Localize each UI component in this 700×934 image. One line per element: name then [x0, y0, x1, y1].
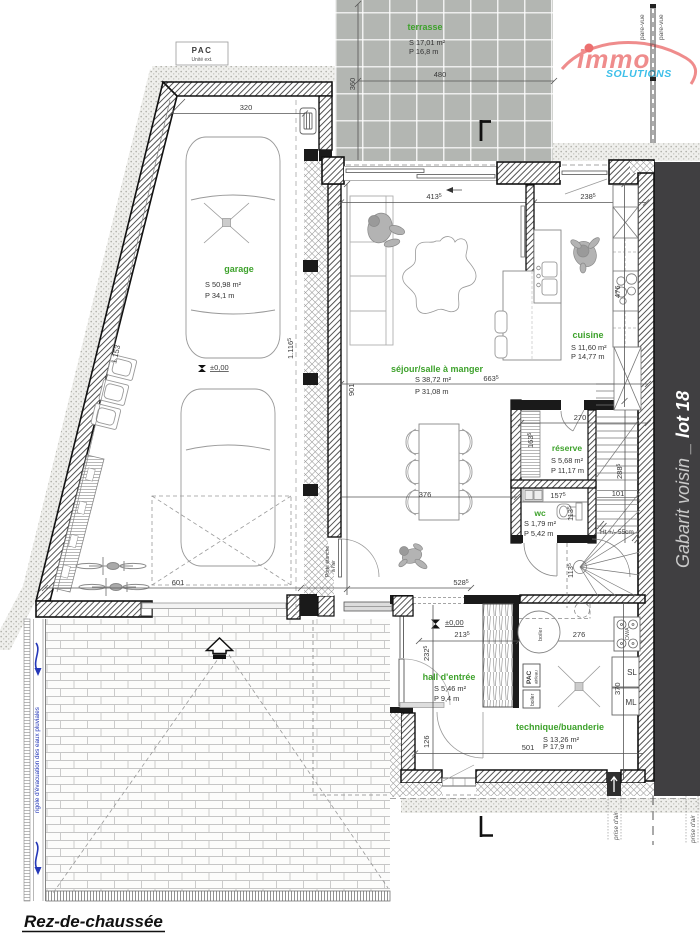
svg-text:S 50,98 m²: S 50,98 m² — [205, 280, 242, 289]
svg-text:séjour/salle à manger: séjour/salle à manger — [391, 364, 484, 374]
svg-text:wc: wc — [533, 508, 546, 518]
svg-text:270: 270 — [574, 413, 587, 422]
svg-text:P 17,9 m: P 17,9 m — [543, 742, 572, 751]
svg-text:Gabarit voisin _ lot 18: Gabarit voisin _ lot 18 — [673, 391, 693, 568]
svg-text:prise d'air: prise d'air — [613, 811, 620, 841]
svg-text:S 38,72 m²: S 38,72 m² — [415, 375, 452, 384]
svg-text:DWA: DWA — [625, 627, 631, 640]
svg-text:hall d'entrée: hall d'entrée — [423, 672, 476, 682]
svg-text:4135: 4135 — [426, 192, 442, 201]
svg-text:Ht +/- 55cm: Ht +/- 55cm — [600, 529, 634, 536]
svg-text:S 5,68 m²: S 5,68 m² — [551, 456, 584, 465]
svg-text:476: 476 — [613, 285, 622, 298]
svg-text:boiler: boiler — [530, 693, 536, 706]
svg-text:P 5,42 m: P 5,42 m — [524, 529, 553, 538]
svg-text:P 31,08 m: P 31,08 m — [415, 387, 449, 396]
svg-text:2385: 2385 — [580, 192, 596, 201]
svg-text:276: 276 — [573, 630, 586, 639]
svg-text:5285: 5285 — [453, 578, 469, 587]
svg-text:réserve: réserve — [552, 443, 583, 453]
svg-text:601: 601 — [172, 578, 185, 587]
svg-text:101: 101 — [612, 489, 625, 498]
svg-text:360: 360 — [348, 78, 357, 91]
svg-text:±0,00: ±0,00 — [210, 363, 229, 372]
svg-text:pare-vue: pare-vue — [639, 14, 646, 40]
svg-text:à l'air: à l'air — [331, 560, 337, 572]
svg-text:SOLUTIONS: SOLUTIONS — [606, 68, 672, 80]
svg-text:2325: 2325 — [422, 645, 431, 661]
svg-text:terrasse: terrasse — [407, 22, 442, 32]
svg-text:cuisine: cuisine — [572, 330, 603, 340]
svg-text:P 14,77 m: P 14,77 m — [571, 352, 605, 361]
svg-text:1135: 1135 — [566, 506, 575, 521]
svg-text:P 9,4 m: P 9,4 m — [434, 694, 459, 703]
svg-text:6635: 6635 — [483, 374, 499, 383]
svg-text:boiler: boiler — [538, 627, 544, 641]
svg-text:901: 901 — [347, 383, 356, 396]
svg-text:2135: 2135 — [454, 630, 470, 639]
svg-text:Rez-de-chaussée: Rez-de-chaussée — [24, 912, 163, 931]
svg-text:±0,00: ±0,00 — [445, 618, 464, 627]
svg-text:370: 370 — [613, 682, 622, 695]
svg-text:S 1,79 m²: S 1,79 m² — [524, 519, 557, 528]
svg-text:garage: garage — [224, 264, 254, 274]
svg-text:pare-vue: pare-vue — [658, 14, 665, 40]
svg-text:1.1165: 1.1165 — [286, 338, 295, 359]
svg-text:126: 126 — [422, 735, 431, 748]
svg-text:320: 320 — [240, 103, 253, 112]
svg-text:technique/buanderie: technique/buanderie — [516, 722, 604, 732]
svg-text:P 16,8 m: P 16,8 m — [409, 47, 438, 56]
svg-text:rigole d'évacuation des eaux p: rigole d'évacuation des eaux pluviales — [34, 707, 41, 813]
svg-text:P 34,1 m: P 34,1 m — [205, 291, 234, 300]
svg-text:376: 376 — [419, 490, 432, 499]
svg-text:air/eau: air/eau — [534, 670, 539, 684]
svg-text:501: 501 — [522, 743, 535, 752]
svg-text:PAC: PAC — [526, 670, 533, 684]
svg-text:S 17,01 m²: S 17,01 m² — [409, 38, 446, 47]
svg-text:PAC: PAC — [192, 46, 213, 55]
svg-text:480: 480 — [434, 70, 447, 79]
svg-text:S 11,60 m²: S 11,60 m² — [571, 343, 607, 352]
svg-text:Unité ext.: Unité ext. — [191, 57, 212, 63]
svg-text:ML: ML — [625, 698, 637, 707]
svg-text:prise d'air: prise d'air — [690, 814, 697, 844]
svg-text:SL: SL — [627, 668, 637, 677]
svg-text:S 5,46 m²: S 5,46 m² — [434, 684, 467, 693]
svg-text:P 11,17 m: P 11,17 m — [551, 466, 584, 475]
svg-text:1575: 1575 — [550, 491, 566, 500]
